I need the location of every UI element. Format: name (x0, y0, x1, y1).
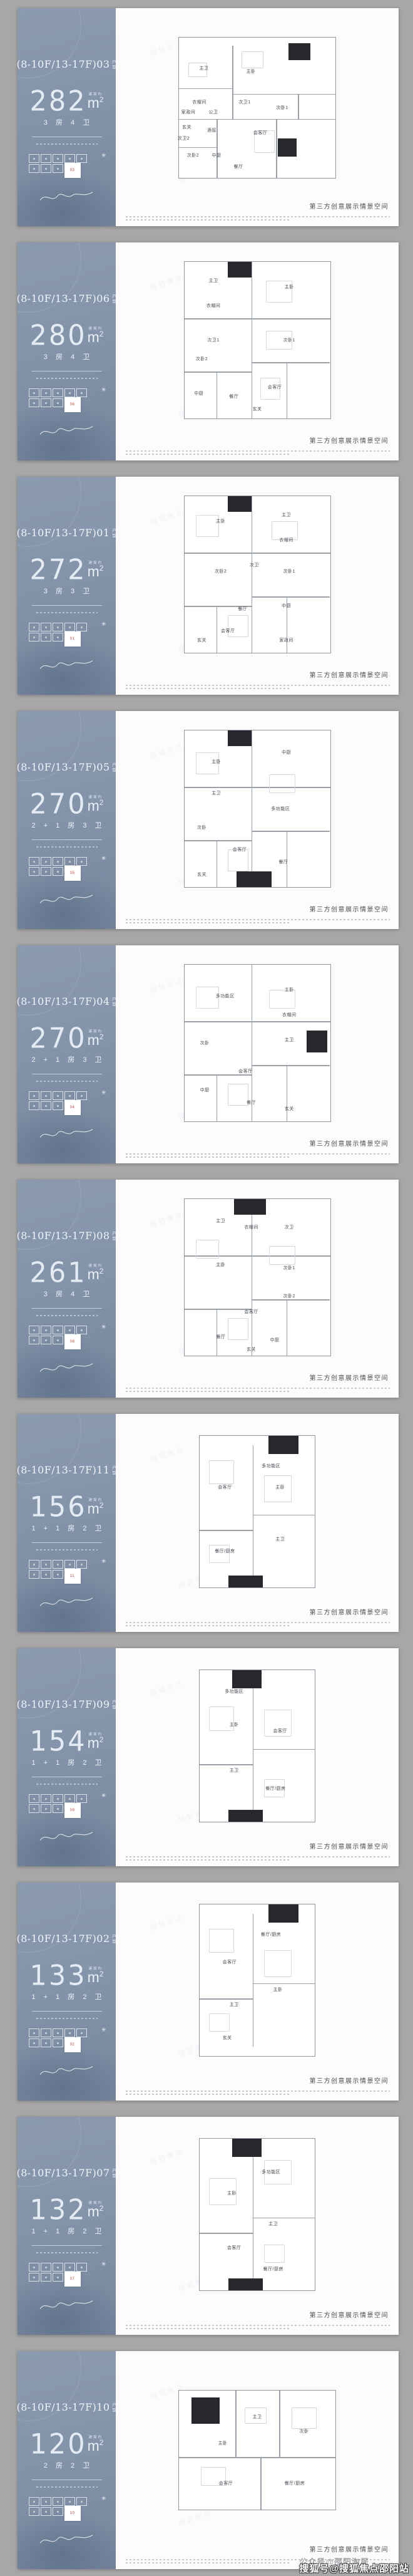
plan-panel: 搜狐焦点 搜狐焦点 搜狐焦点 主卫主卧次卧会客厅餐厅/厨房 第三方创意展示情景空… (116, 2351, 399, 2569)
floor-plan: 多功能区主卧衣帽间主卫次卧会客厅中厨餐厅玄关 (184, 964, 331, 1122)
area-number: 270 (30, 791, 87, 818)
room-label: 主卧 (218, 2440, 228, 2446)
plan-panel: 搜狐焦点 搜狐焦点 搜狐焦点 主卫衣帽间次卫主卧次卧1次卧2会客厅餐厅中厨玄关 … (116, 1180, 399, 1398)
interior-wall (252, 1299, 330, 1301)
keyplan-unit-cell (64, 623, 75, 631)
card-sidebar: (8-10F/13-17F)04 户型 270 建面约m2 2 + 1 房 3 … (18, 945, 116, 1163)
furniture-outline (209, 1929, 234, 1953)
compass-icon: ✳ (101, 2495, 106, 2502)
area-prefix-label: 建面约 (89, 794, 103, 799)
furniture-outline (228, 849, 248, 871)
unit-title: (8-10F/13-17F)11 户型 (18, 1464, 116, 1476)
sidebar-fine-print (36, 1081, 98, 1082)
disclaimer-line (126, 2090, 390, 2092)
keyplan-unit-cell (64, 154, 75, 163)
interior-wall (179, 2457, 335, 2458)
interior-wall (185, 318, 330, 319)
keyplan-highlight: 10 (64, 2506, 81, 2521)
area-value: 156 建面约m2 (30, 1495, 104, 1520)
room-label: 次卧 (197, 824, 206, 831)
disclaimer-line (126, 1388, 390, 1389)
area-unit-m: m (88, 95, 99, 111)
interior-wall (185, 1021, 330, 1022)
keyplan-unit-cell (41, 164, 51, 173)
room-label: 次卧 (200, 1040, 210, 1046)
interior-wall (232, 46, 233, 118)
area-number: 133 (30, 1963, 87, 1989)
interior-wall (185, 840, 252, 841)
area-prefix-label: 建面约 (89, 2200, 103, 2205)
furniture-outline (264, 2245, 285, 2263)
keyplan-unit-cell (29, 857, 39, 866)
floor-plan: 中厨主卧主卫次卧多功能区会客厅餐厅玄关 (184, 730, 331, 888)
sidebar-divider (32, 137, 102, 137)
interior-wall (185, 553, 330, 554)
card-sidebar: (8-10F/13-17F)08 户型 261 建面约m2 3 房 4 卫 (18, 1180, 116, 1398)
keyplan-unit-cell (29, 1794, 39, 1803)
unit-title: (8-10F/13-17F)10 户型 (18, 2401, 116, 2413)
keyplan-unit-cell (76, 2497, 87, 2506)
keyplan-unit-cell (76, 623, 87, 631)
keyplan-unit-cell (29, 1560, 39, 1569)
room-label: 会客厅 (253, 130, 268, 136)
area-unit-sup: 2 (99, 1267, 104, 1275)
core-block (228, 1576, 263, 1587)
room-label: 会客厅 (221, 628, 235, 634)
keyplan-unit-cell (53, 2497, 63, 2506)
interior-wall (200, 1764, 253, 1765)
interior-wall (200, 1998, 253, 2000)
keyplan-unit-cell (29, 867, 39, 876)
room-label: 主卧 (247, 68, 256, 75)
disclaimer-line (126, 1391, 290, 1392)
rooms-config: 1 + 1 房 2 卫 (28, 1992, 105, 2002)
room-label: 次卧2 (196, 356, 208, 362)
furniture-outline (209, 1460, 234, 1485)
area-prefix-label: 建面约 (89, 1029, 103, 1034)
compass-icon: ✳ (101, 152, 106, 159)
keyplan-unit-cell (41, 1101, 51, 1110)
keyplan-unit-cell (53, 2263, 63, 2272)
furniture-outline (196, 1240, 219, 1259)
compass-icon: ✳ (101, 387, 106, 393)
room-label: 多功能区 (262, 1463, 280, 1469)
room-label: 次卧1 (283, 568, 295, 574)
disclaimer-line (126, 922, 290, 923)
room-label: 衣帽间 (192, 99, 206, 105)
keyplan-unit-cell (41, 1091, 51, 1100)
interior-wall (179, 88, 232, 90)
area-value: 272 建面约m2 (30, 558, 104, 583)
interior-wall (253, 1983, 315, 1985)
keyplan-unit-cell (41, 2507, 51, 2516)
card-sidebar: (8-10F/13-17F)03 户型 282 建面约m2 3 房 4 卫 (18, 8, 116, 226)
compass-icon: ✳ (101, 2027, 106, 2033)
keyplan-unit-cell (53, 1101, 63, 1110)
room-label: 次卧1 (283, 337, 295, 343)
room-label: 玄关 (197, 871, 206, 878)
keyplan-unit-cell (41, 1326, 51, 1334)
room-label: 次卧 (300, 2428, 309, 2434)
sidebar-divider (32, 2245, 102, 2246)
keyplan-unit-cell (53, 1804, 63, 1813)
area-value: 261 建面约m2 (30, 1260, 104, 1285)
room-label: 玄关 (285, 1106, 294, 1112)
room-label: 多功能区 (225, 1688, 243, 1695)
room-label: 餐厅 (238, 606, 247, 612)
keyplan-unit-cell (53, 1794, 63, 1803)
keyplan-unit-code: 06 (70, 403, 75, 407)
furniture-outline (209, 2013, 230, 2032)
unit-code: (8-10F/13-17F)06 (18, 293, 110, 304)
keyplan-unit-cell (53, 2507, 63, 2516)
keyplan-highlight: 03 (64, 163, 81, 178)
interior-wall (232, 94, 335, 95)
plan-panel: 搜狐焦点 搜狐焦点 搜狐焦点 餐厅/厨房会客厅主卧主卫玄关 第三方创意展示情景空… (116, 1883, 399, 2101)
keyplan-unit-cell (41, 2028, 51, 2037)
keyplan-unit-cell (76, 388, 87, 397)
keyplan-unit-cell (41, 633, 51, 641)
floorplan-card: (8-10F/13-17F)03 户型 282 建面约m2 3 房 4 卫 (18, 8, 399, 226)
compass-icon: ✳ (101, 2261, 106, 2268)
furniture-outline (292, 2407, 317, 2429)
interior-wall (252, 1199, 253, 1356)
keyplan-unit-cell (29, 2507, 39, 2516)
interior-wall (185, 1074, 252, 1076)
area-unit-sup: 2 (99, 1501, 104, 1510)
unit-code: (8-10F/13-17F)03 (18, 58, 110, 70)
keyplan-unit-code: 01 (70, 637, 75, 641)
interior-wall (252, 831, 330, 832)
signature-flourish (38, 2297, 95, 2313)
interior-wall (185, 787, 330, 788)
keyplan-unit-cell (64, 388, 75, 397)
core-block (228, 1810, 263, 1822)
room-label: 衣帽间 (279, 537, 293, 543)
keyplan-highlight: 08 (64, 1334, 81, 1349)
interior-wall (217, 840, 218, 887)
room-label: 主卫 (212, 790, 221, 796)
furniture-outline (228, 1318, 248, 1340)
room-label: 餐厅 (216, 1334, 225, 1340)
compass-icon: ✳ (101, 621, 106, 628)
keyplan-unit-cell (41, 1570, 51, 1579)
rooms-config: 3 房 4 卫 (41, 1289, 93, 1299)
room-label: 主卧 (230, 1722, 239, 1728)
card-sidebar: (8-10F/13-17F)02 户型 133 建面约m2 1 + 1 房 2 … (18, 1883, 116, 2101)
keyplan-unit-cell (76, 1794, 87, 1803)
area-unit-m: m (88, 1735, 99, 1751)
building-keyplan: 10 ✳ (28, 2497, 106, 2526)
keyplan-unit-cell (53, 2028, 63, 2037)
keyplan-unit-cell (29, 2028, 39, 2037)
interior-wall (179, 147, 217, 148)
card-sidebar: (8-10F/13-17F)01 户型 272 建面约m2 3 房 3 卫 (18, 477, 116, 695)
interior-wall (276, 119, 277, 178)
floor-plan: 主卫主卧衣帽间次卫1次卧1次卧2会客厅餐厅中厨玄关 (184, 261, 331, 419)
room-label: 多功能区 (262, 2169, 280, 2175)
area-unit: 建面约m2 (88, 1500, 104, 1517)
sidebar-divider (32, 371, 102, 371)
room-label: 主卫 (230, 2002, 239, 2008)
room-label: 主卧 (285, 987, 294, 993)
room-label: 主卧 (273, 1987, 283, 1993)
keyplan-unit-cell (41, 388, 51, 397)
room-label: 玄关 (223, 2035, 232, 2041)
area-unit: 建面约m2 (88, 1969, 104, 1985)
keyplan-unit-code: 02 (70, 2043, 75, 2047)
interior-wall (217, 606, 218, 653)
area-unit-m: m (88, 1032, 99, 1048)
room-label: 会客厅 (268, 384, 282, 390)
keyplan-highlight: 06 (64, 397, 81, 412)
area-unit: 建面约m2 (88, 797, 104, 814)
area-unit: 建面约m2 (88, 563, 104, 579)
interior-wall (179, 119, 335, 120)
disclaimer-lines (126, 1620, 390, 1626)
keyplan-unit-cell (64, 2263, 75, 2272)
area-unit-sup: 2 (99, 2438, 104, 2447)
area-number: 154 (30, 1728, 87, 1755)
rooms-config: 3 房 4 卫 (41, 351, 93, 361)
furniture-outline (242, 51, 263, 68)
watermark-tile: 搜狐焦点 (177, 2507, 213, 2528)
furniture-outline (264, 1950, 292, 1978)
unit-code: (8-10F/13-17F)10 (18, 2401, 110, 2413)
card-sidebar: (8-10F/13-17F)10 户型 120 建面约m2 2 房 2 卫 (18, 2351, 116, 2569)
furniture-outline (228, 1084, 248, 1106)
plan-caption: 第三方创意展示情景空间 (310, 1373, 389, 1382)
keyplan-unit-cell (29, 154, 39, 163)
floorplan-card: (8-10F/13-17F)10 户型 120 建面约m2 2 房 2 卫 (18, 2351, 399, 2569)
interior-wall (252, 596, 330, 598)
unit-suffix-label: 户型 (111, 294, 116, 304)
watermark-tile: 搜狐焦点 (149, 506, 185, 527)
disclaimer-line (126, 919, 390, 920)
disclaimer-line (126, 1856, 390, 1857)
building-keyplan: 04 ✳ (28, 1091, 106, 1120)
plan-caption: 第三方创意展示情景空间 (310, 1841, 389, 1851)
interior-wall (217, 119, 218, 178)
sidebar-fine-print (36, 1784, 98, 1785)
core-block (268, 1904, 298, 1923)
keyplan-unit-cell (53, 164, 63, 173)
area-number: 280 (30, 323, 87, 349)
core-block (268, 1436, 298, 1454)
core-block (278, 138, 297, 157)
keyplan-unit-cell (53, 1560, 63, 1569)
room-label: 次卧2 (215, 568, 227, 574)
sidebar-fine-print (36, 2486, 98, 2488)
disclaimer-line (126, 688, 290, 689)
keyplan-highlight: 01 (64, 631, 81, 647)
floorplan-card: (8-10F/13-17F)06 户型 280 建面约m2 3 房 4 卫 (18, 242, 399, 460)
keyplan-unit-cell (53, 1570, 63, 1579)
floorplan-card: (8-10F/13-17F)09 户型 154 建面约m2 1 + 1 房 2 … (18, 1648, 399, 1866)
unit-title: (8-10F/13-17F)03 户型 (18, 58, 116, 70)
keyplan-unit-code: 09 (70, 1809, 75, 1812)
area-unit-sup: 2 (99, 1032, 104, 1041)
core-block (232, 2139, 262, 2157)
plan-panel: 搜狐焦点 搜狐焦点 搜狐焦点 多功能区主卧会客厅主卫餐厅/厨房 第三方创意展示情… (116, 1648, 399, 1866)
keyplan-unit-cell (29, 398, 39, 407)
signature-flourish (38, 2532, 95, 2547)
plan-caption: 第三方创意展示情景空间 (310, 904, 389, 913)
core-block (288, 43, 310, 60)
area-unit-sup: 2 (99, 330, 104, 338)
floor-plan: 餐厅/厨房会客厅主卧主卫玄关 (199, 1904, 315, 2057)
area-value: 132 建面约m2 (30, 2198, 104, 2223)
keyplan-unit-cell (64, 2028, 75, 2037)
compass-icon: ✳ (101, 1089, 106, 1096)
unit-title: (8-10F/13-17F)04 户型 (18, 995, 116, 1007)
disclaimer-line (126, 1625, 290, 1626)
unit-suffix-label: 户型 (111, 1935, 116, 1944)
room-label: 主卫 (230, 1767, 239, 1774)
room-label: 主卧 (285, 284, 294, 290)
interior-wall (200, 1530, 253, 1531)
core-block (228, 262, 251, 278)
sidebar-divider (32, 839, 102, 840)
keyplan-unit-cell (29, 1091, 39, 1100)
area-unit: 建面约m2 (88, 95, 104, 111)
floorplan-card: (8-10F/13-17F)04 户型 270 建面约m2 2 + 1 房 3 … (18, 945, 399, 1163)
floor-plan: 主卫主卧衣帽间家政间公卫次卫1次卧1玄关酒窖次卫2次卧2中厨餐厅会客厅 (178, 37, 336, 179)
area-number: 156 (30, 1494, 87, 1520)
room-label: 主卧 (216, 1262, 225, 1268)
interior-wall (253, 2148, 254, 2282)
room-label: 餐厅/厨房 (261, 1931, 281, 1938)
unit-title: (8-10F/13-17F)07 户型 (18, 2167, 116, 2179)
building-keyplan: 03 ✳ (28, 154, 106, 183)
sidebar-fine-print (36, 612, 98, 613)
area-number: 120 (30, 2431, 87, 2458)
sidebar-divider (32, 1074, 102, 1074)
room-label: 衣帽间 (244, 1224, 258, 1230)
interior-wall (260, 2457, 262, 2510)
keyplan-unit-cell (76, 2263, 87, 2272)
watermark-tile: 搜狐焦点 (149, 1678, 185, 1698)
floorplan-card: (8-10F/13-17F)07 户型 132 建面约m2 1 + 1 房 2 … (18, 2117, 399, 2335)
floor-plan: 多功能区主卧会客厅主卫餐厅/厨房 (199, 1670, 315, 1822)
core-block (191, 2397, 220, 2424)
disclaimer-line (126, 2328, 290, 2329)
plan-caption: 第三方创意展示情景空间 (310, 2310, 389, 2319)
sidebar-divider (32, 2011, 102, 2012)
watermark-tile: 搜狐焦点 (149, 740, 185, 761)
disclaimer-lines (126, 449, 390, 455)
area-prefix-label: 建面约 (89, 326, 103, 331)
signature-flourish (38, 189, 95, 204)
room-label: 主卫 (282, 512, 291, 518)
room-label: 次卫 (285, 1224, 294, 1230)
room-label: 次卧2 (187, 152, 199, 158)
keyplan-unit-cell (76, 857, 87, 866)
keyplan-unit-cell (76, 1091, 87, 1100)
core-block (232, 1670, 262, 1688)
area-number: 132 (30, 2197, 87, 2223)
interior-wall (287, 362, 288, 418)
room-label: 次卧1 (283, 1265, 295, 1271)
building-keyplan: 08 ✳ (28, 1326, 106, 1354)
keyplan-unit-cell (53, 2038, 63, 2047)
room-label: 会客厅 (273, 1728, 288, 1734)
plan-caption: 第三方创意展示情景空间 (310, 2075, 389, 2085)
interior-wall (235, 2391, 237, 2457)
keyplan-unit-code: 04 (70, 1106, 75, 1109)
disclaimer-line (126, 1153, 390, 1155)
room-label: 多功能区 (271, 806, 290, 812)
room-label: 中厨 (212, 152, 222, 158)
disclaimer-line (126, 450, 390, 452)
unit-title: (8-10F/13-17F)01 户型 (18, 527, 116, 539)
sidebar-fine-print (36, 846, 98, 848)
rooms-config: 1 + 1 房 2 卫 (28, 2226, 105, 2236)
sidebar-divider (32, 605, 102, 606)
area-unit: 建面约m2 (88, 329, 104, 345)
interior-wall (252, 730, 253, 887)
interior-wall (253, 1515, 315, 1516)
disclaimer-lines (126, 917, 390, 923)
room-label: 会客厅 (219, 2480, 233, 2486)
floor-plan: 多功能区会客厅主卧主卫餐厅/厨房 (199, 1435, 315, 1588)
keyplan-unit-cell (29, 1101, 39, 1110)
area-value: 120 建面约m2 (30, 2432, 104, 2457)
area-value: 282 建面约m2 (30, 89, 104, 114)
sidebar-fine-print (36, 2018, 98, 2019)
sidebar-fine-print (36, 1315, 98, 1316)
keyplan-unit-cell (41, 2038, 51, 2047)
area-value: 154 建面约m2 (30, 1729, 104, 1754)
floor-plan: 主卫主卧次卧会客厅餐厅/厨房 (178, 2390, 336, 2510)
keyplan-unit-cell (41, 867, 51, 876)
room-label: 中厨 (194, 390, 203, 397)
area-unit: 建面约m2 (88, 2203, 104, 2220)
floor-plan: 多功能区主卧主卫会客厅餐厅/厨房 (199, 2138, 315, 2291)
disclaimer-lines (126, 1151, 390, 1158)
sidebar-fine-print (36, 143, 98, 145)
room-label: 主卫 (216, 1218, 225, 1224)
rooms-config: 1 + 1 房 2 卫 (28, 1757, 105, 1767)
room-label: 餐厅 (229, 393, 238, 400)
interior-wall (287, 1065, 288, 1121)
area-value: 133 建面约m2 (30, 1963, 104, 1988)
keyplan-unit-cell (29, 2273, 39, 2282)
unit-code: (8-10F/13-17F)01 (18, 527, 110, 539)
area-prefix-label: 建面约 (89, 1966, 103, 1971)
floorplan-card: (8-10F/13-17F)02 户型 133 建面约m2 1 + 1 房 2 … (18, 1883, 399, 2101)
unit-code: (8-10F/13-17F)11 (18, 1464, 110, 1476)
disclaimer-line (126, 2562, 290, 2563)
keyplan-unit-cell (41, 2497, 51, 2506)
keyplan-unit-cell (53, 1091, 63, 1100)
sidebar-divider (32, 2480, 102, 2480)
signature-flourish (38, 657, 95, 673)
keyplan-unit-cell (29, 2263, 39, 2272)
sidebar-fine-print (36, 2252, 98, 2253)
keyplan-highlight: 02 (64, 2037, 81, 2052)
plan-panel: 搜狐焦点 搜狐焦点 搜狐焦点 多功能区会客厅主卧主卫餐厅/厨房 第三方创意展示情… (116, 1414, 399, 1632)
keyplan-unit-cell (64, 1326, 75, 1334)
room-label: 主卧 (212, 759, 221, 765)
area-number: 270 (30, 1026, 87, 1052)
keyplan-unit-cell (41, 1794, 51, 1803)
area-unit-sup: 2 (99, 564, 104, 573)
keyplan-unit-cell (53, 398, 63, 407)
room-label: 餐厅/厨房 (215, 1548, 235, 1554)
building-keyplan: 02 ✳ (28, 2028, 106, 2057)
disclaimer-line (126, 219, 290, 221)
